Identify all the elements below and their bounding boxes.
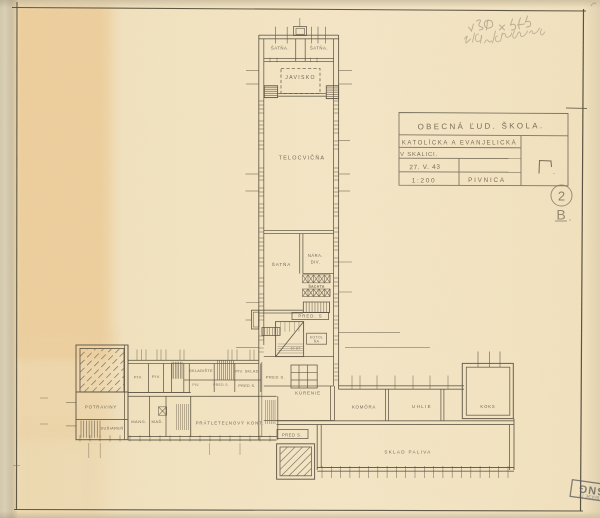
svg-text:1:200: 1:200 [412, 178, 437, 185]
svg-text:KATOLÍCKA A EVANJELICKÁ: KATOLÍCKA A EVANJELICKÁ [402, 139, 517, 146]
svg-text:.: . [569, 213, 572, 224]
svg-text:B: B [556, 207, 565, 223]
svg-text:2: 2 [558, 189, 565, 204]
svg-text:PIVNICA: PIVNICA [468, 177, 506, 184]
svg-text:OBECNÁ ĽUD. ŠKOLA.: OBECNÁ ĽUD. ŠKOLA. [418, 121, 545, 131]
svg-text:.: . [553, 169, 555, 176]
svg-text:27. V. 43: 27. V. 43 [409, 164, 440, 172]
svg-text:V SKALICI.: V SKALICI. [400, 152, 438, 158]
